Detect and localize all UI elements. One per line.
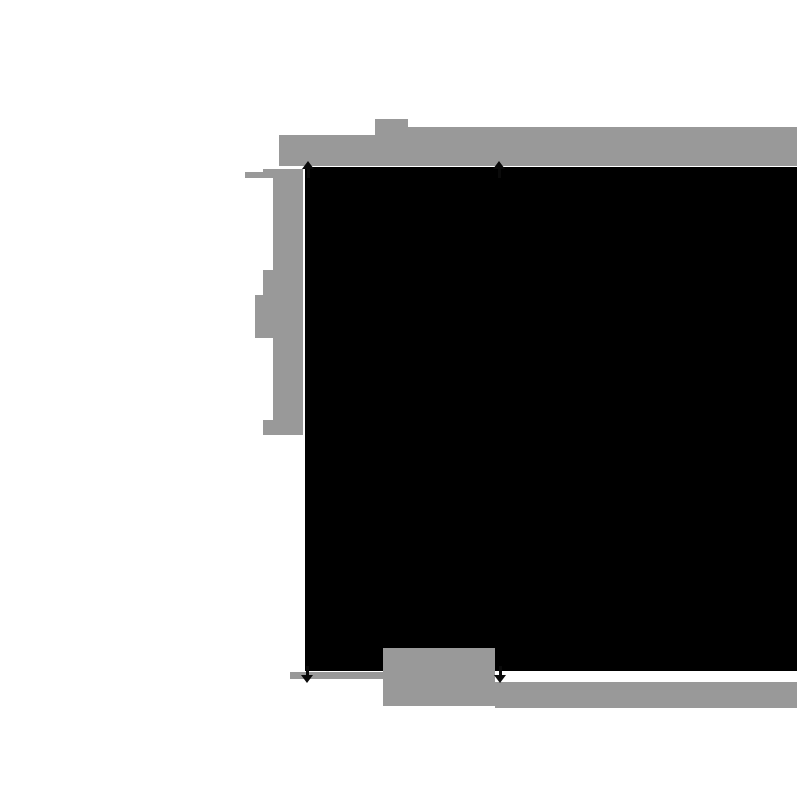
bottom-label-blob (383, 648, 495, 706)
black-content-rectangle (305, 167, 797, 671)
bottom-annotation-bar-right (495, 682, 797, 708)
top-annotation-bar-left-segment (279, 135, 375, 166)
figure-canvas (0, 0, 800, 800)
down-arrow-icon (494, 666, 506, 683)
top-annotation-text-blob (375, 119, 408, 166)
down-arrowhead (494, 675, 506, 683)
up-arrowhead (302, 161, 314, 169)
left-bracket-serif-bottom (263, 420, 273, 435)
arrow-stem (306, 666, 309, 675)
up-arrow-icon (493, 161, 505, 178)
left-bracket-serif-top (263, 169, 273, 177)
left-label-blob-large (255, 295, 273, 338)
down-arrow-icon (301, 666, 313, 683)
left-annotation-bar (273, 169, 303, 435)
arrow-stem (307, 169, 310, 178)
up-arrowhead (493, 161, 505, 169)
up-arrow-icon (302, 161, 314, 178)
down-arrowhead (301, 675, 313, 683)
arrow-stem (498, 169, 501, 178)
left-label-blob-small (263, 270, 273, 295)
top-annotation-bar-right-segment (408, 127, 797, 166)
arrow-stem (499, 666, 502, 675)
